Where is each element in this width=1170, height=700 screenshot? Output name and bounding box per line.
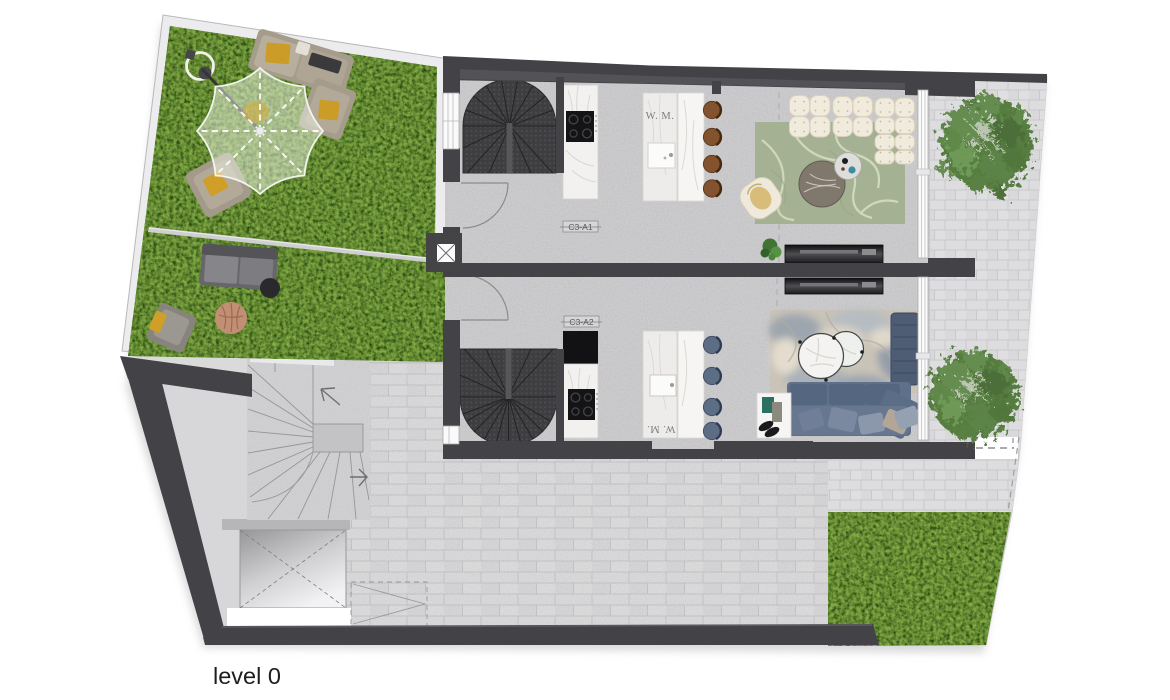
svg-text:level 0: level 0 [213, 663, 281, 689]
svg-text:W. M.: W. M. [646, 111, 675, 122]
svg-text:W. M.: W. M. [647, 423, 676, 434]
